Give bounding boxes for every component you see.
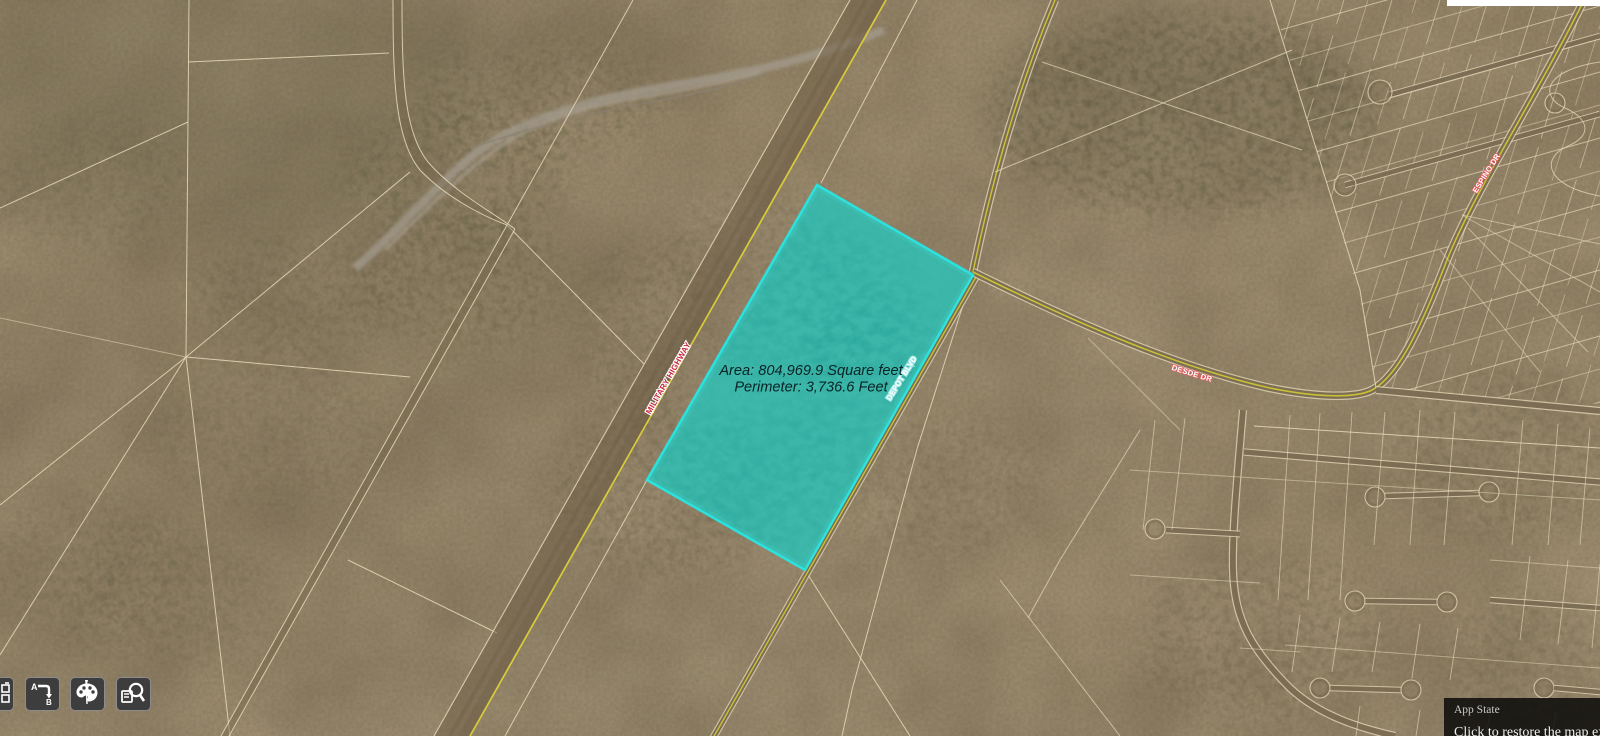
svg-text:Area: 804,969.9 Square feet: Area: 804,969.9 Square feet	[718, 363, 903, 379]
svg-text:Perimeter: 3,736.6 Feet: Perimeter: 3,736.6 Feet	[734, 380, 888, 396]
svg-text:A: A	[31, 682, 38, 692]
svg-text:B: B	[46, 698, 52, 707]
